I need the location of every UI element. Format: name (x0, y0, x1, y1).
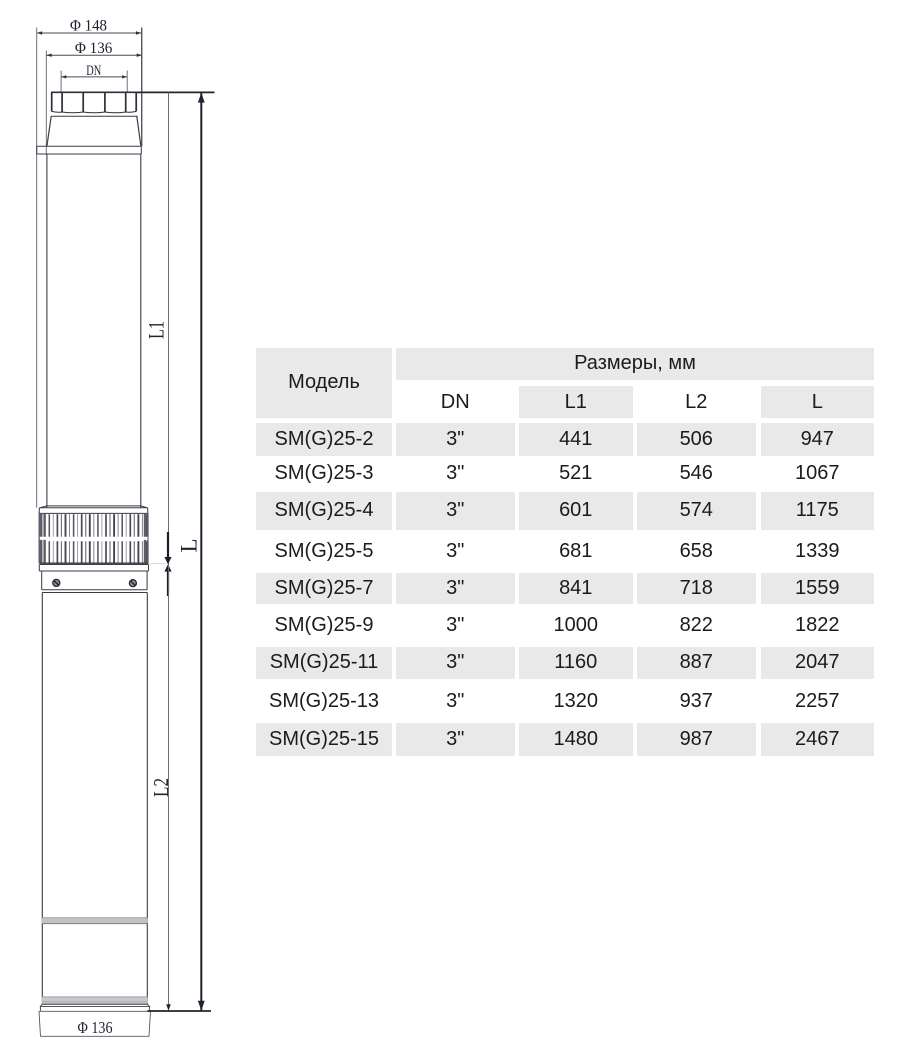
svg-text:Φ 148: Φ 148 (70, 18, 107, 35)
svg-text:L2: L2 (149, 778, 173, 797)
svg-text:L: L (177, 538, 202, 552)
svg-text:L1: L1 (144, 321, 169, 339)
svg-text:Φ 136: Φ 136 (78, 1018, 113, 1037)
svg-text:Φ 136: Φ 136 (75, 40, 113, 57)
